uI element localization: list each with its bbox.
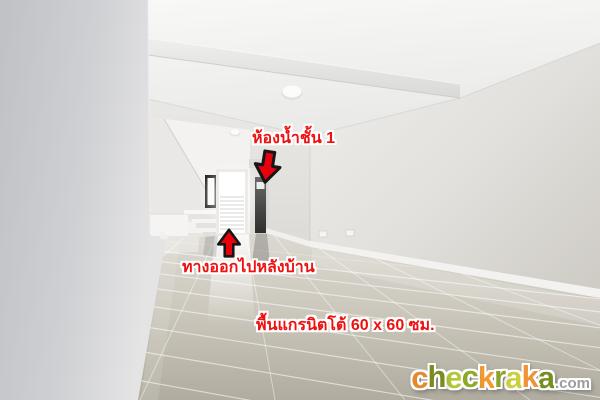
watermark-suffix: .com [555,376,590,391]
stairwell-hallway [150,117,266,236]
logo-letter: c [462,361,478,392]
logo-letter: a [538,362,554,393]
logo-letter: k [521,361,537,392]
logo-letter: h [427,361,445,392]
logo-letter: a [505,362,521,393]
logo-letter: c [411,362,427,393]
floor-material-label: พื้นแกรนิตโต้ 60 x 60 ซม. [256,316,435,336]
room-scene [0,0,600,400]
watermark-letters: checkraka [411,362,554,393]
left-wall [0,0,166,400]
stair-half-wall [150,214,188,236]
checkraka-watermark: checkraka .com [411,362,590,393]
room-photo: ห้องน้ำชั้น 1 ทางออกไปหลังบ้าน พื้นแกรนิ… [0,0,600,400]
logo-letter: r [494,361,505,392]
bathroom-label: ห้องน้ำชั้น 1 [252,129,335,149]
back-exit-label: ทางออกไปหลังบ้าน [182,258,315,278]
logo-letter: e [445,362,461,393]
logo-letter: k [478,362,494,393]
